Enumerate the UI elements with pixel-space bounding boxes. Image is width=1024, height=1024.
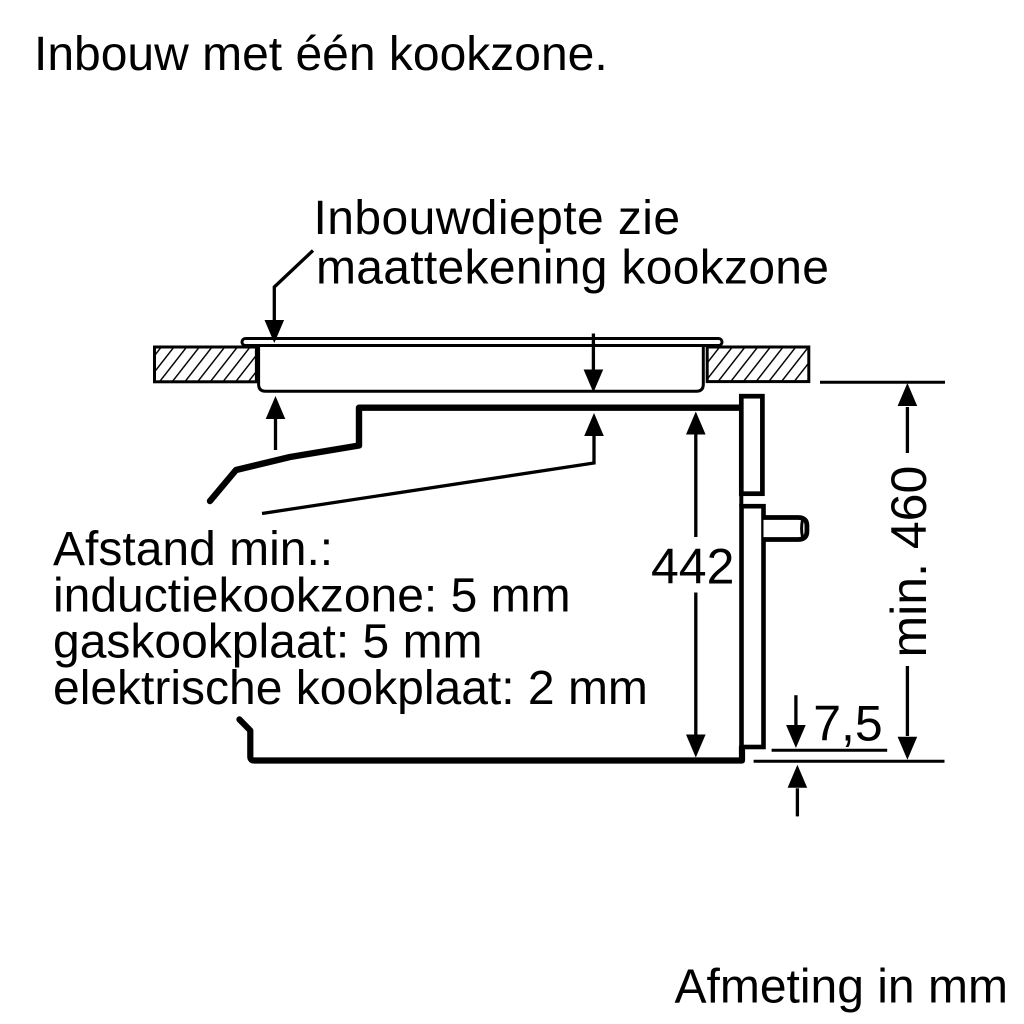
svg-text:Inbouw met één kookzone.: Inbouw met één kookzone. bbox=[34, 28, 608, 81]
svg-text:min. 460: min. 460 bbox=[881, 466, 937, 658]
svg-text:Afmeting in mm: Afmeting in mm bbox=[675, 961, 1008, 1014]
svg-text:Inbouwdiepte zie: Inbouwdiepte zie bbox=[314, 192, 681, 245]
svg-text:maattekening kookzone: maattekening kookzone bbox=[316, 242, 829, 295]
svg-text:Afstand min.:: Afstand min.: bbox=[53, 523, 333, 576]
svg-text:442: 442 bbox=[651, 539, 734, 595]
svg-text:7,5: 7,5 bbox=[813, 696, 883, 752]
svg-text:gaskookplaat: 5 mm: gaskookplaat: 5 mm bbox=[53, 616, 483, 669]
svg-text:elektrische kookplaat: 2 mm: elektrische kookplaat: 2 mm bbox=[53, 662, 648, 715]
